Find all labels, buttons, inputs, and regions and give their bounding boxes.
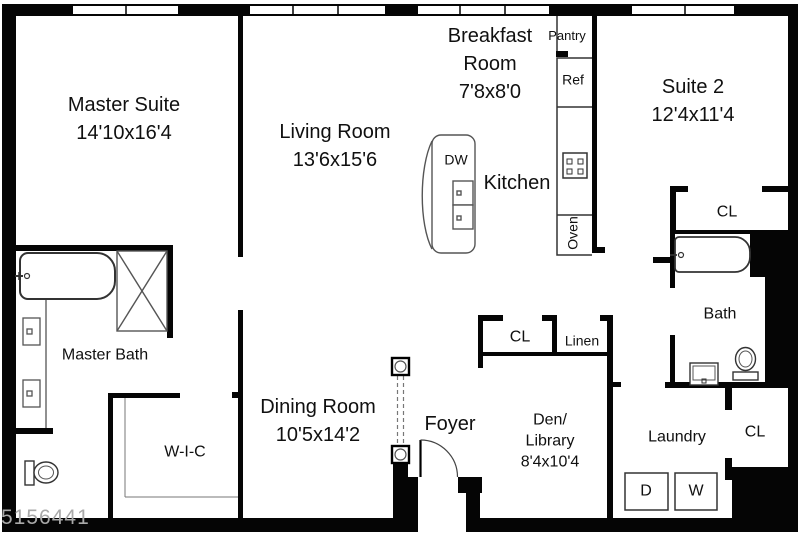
right-wall xyxy=(788,4,798,532)
wall-masterbath-bottom xyxy=(2,428,53,434)
label-kitchen: Kitchen xyxy=(484,169,551,197)
room-name: Den/ xyxy=(521,410,580,431)
wall-pantry-bracket xyxy=(556,51,568,57)
room-name: Living Room xyxy=(279,118,390,146)
room-name: Dining Room xyxy=(260,393,376,421)
entry-door xyxy=(421,440,458,477)
wall-shower-right xyxy=(167,250,173,338)
bath-toilet-icon xyxy=(733,348,758,381)
label-closet-den: CL xyxy=(510,327,530,348)
room-name: Master Suite xyxy=(68,91,180,119)
watermark: 5156441 xyxy=(1,506,90,530)
label-master-bath: Master Bath xyxy=(62,345,148,366)
floor-plan: Master Suite 14'10x16'4 Living Room 13'6… xyxy=(0,0,800,535)
suite2-tub xyxy=(670,237,750,272)
wall-bath-right-mass xyxy=(765,277,788,388)
label-master-suite: Master Suite 14'10x16'4 xyxy=(68,91,180,147)
wall-entry-jamb-left xyxy=(406,477,418,532)
wall-dining-hall xyxy=(238,310,243,518)
wall-wic-left xyxy=(108,393,113,532)
label-laundry: Laundry xyxy=(648,427,706,448)
wall-dencl-mid xyxy=(552,315,557,355)
label-dishwasher: DW xyxy=(444,152,467,169)
room-name: Suite 2 xyxy=(652,73,735,101)
room-name: Breakfast Room xyxy=(428,22,552,78)
room-name: Library xyxy=(521,431,580,452)
wall-den-tick xyxy=(613,382,621,387)
wall-hall-stub xyxy=(653,257,670,263)
room-dims: 12'4x11'4 xyxy=(652,101,735,129)
label-closet-suite2: CL xyxy=(717,202,737,223)
wall-bottomright-mass xyxy=(732,477,798,532)
window xyxy=(418,6,549,14)
door-swing-arc xyxy=(421,440,458,477)
master-toilet-icon xyxy=(25,461,58,485)
bath-sink-icon xyxy=(690,363,718,385)
wall-dencl-shelf xyxy=(478,352,608,356)
label-den-library: Den/ Library 8'4x10'4 xyxy=(521,410,580,473)
wall-suite2-cl-shelf xyxy=(670,230,788,234)
wall-entry-jamb-right xyxy=(466,477,480,532)
wall-entry-column xyxy=(393,463,408,532)
wall-bath-left-b xyxy=(670,335,675,387)
label-foyer: Foyer xyxy=(424,410,475,438)
label-pantry: Pantry xyxy=(548,28,586,44)
label-washer: W xyxy=(688,481,703,502)
wall-stub xyxy=(232,392,238,398)
shower xyxy=(117,251,167,331)
label-closet-laundry: CL xyxy=(745,422,765,443)
label-dryer: D xyxy=(640,481,652,502)
window xyxy=(250,6,385,14)
room-dims: 13'6x15'6 xyxy=(279,146,390,174)
left-wall xyxy=(2,4,16,532)
window xyxy=(632,6,734,14)
wall-suite2-cl-left xyxy=(670,186,676,233)
master-tub xyxy=(15,253,115,299)
label-bath: Bath xyxy=(704,304,737,325)
label-linen: Linen xyxy=(565,333,599,350)
wall-master-living xyxy=(238,16,243,257)
master-vanity xyxy=(23,300,46,428)
room-dims: 8'4x10'4 xyxy=(521,452,580,473)
wall-kitchen-right xyxy=(592,16,597,253)
label-refrigerator: Ref xyxy=(562,72,584,89)
wall-block-tub-right xyxy=(750,234,788,277)
wall-suite2-bottom-b xyxy=(762,186,788,192)
wall-laundrycl-left-a xyxy=(725,382,732,410)
wall-dencl-left xyxy=(478,315,483,368)
wall-masterbath-top xyxy=(16,245,173,251)
room-dims: 7'8x8'0 xyxy=(428,78,552,106)
room-dims: 14'10x16'4 xyxy=(68,119,180,147)
room-dims: 10'5x14'2 xyxy=(260,421,376,449)
label-suite-2: Suite 2 12'4x11'4 xyxy=(652,73,735,129)
label-dining-room: Dining Room 10'5x14'2 xyxy=(260,393,376,449)
foyer-railing xyxy=(392,358,409,463)
label-living-room: Living Room 13'6x15'6 xyxy=(279,118,390,174)
wall-wic-top xyxy=(108,393,180,398)
label-wic: W-I-C xyxy=(164,442,205,463)
label-oven: Oven xyxy=(565,216,582,249)
label-breakfast-room: Breakfast Room 7'8x8'0 xyxy=(428,22,552,106)
wall-kitchen-foot xyxy=(592,247,605,253)
wall-den-top-stub xyxy=(600,315,613,321)
